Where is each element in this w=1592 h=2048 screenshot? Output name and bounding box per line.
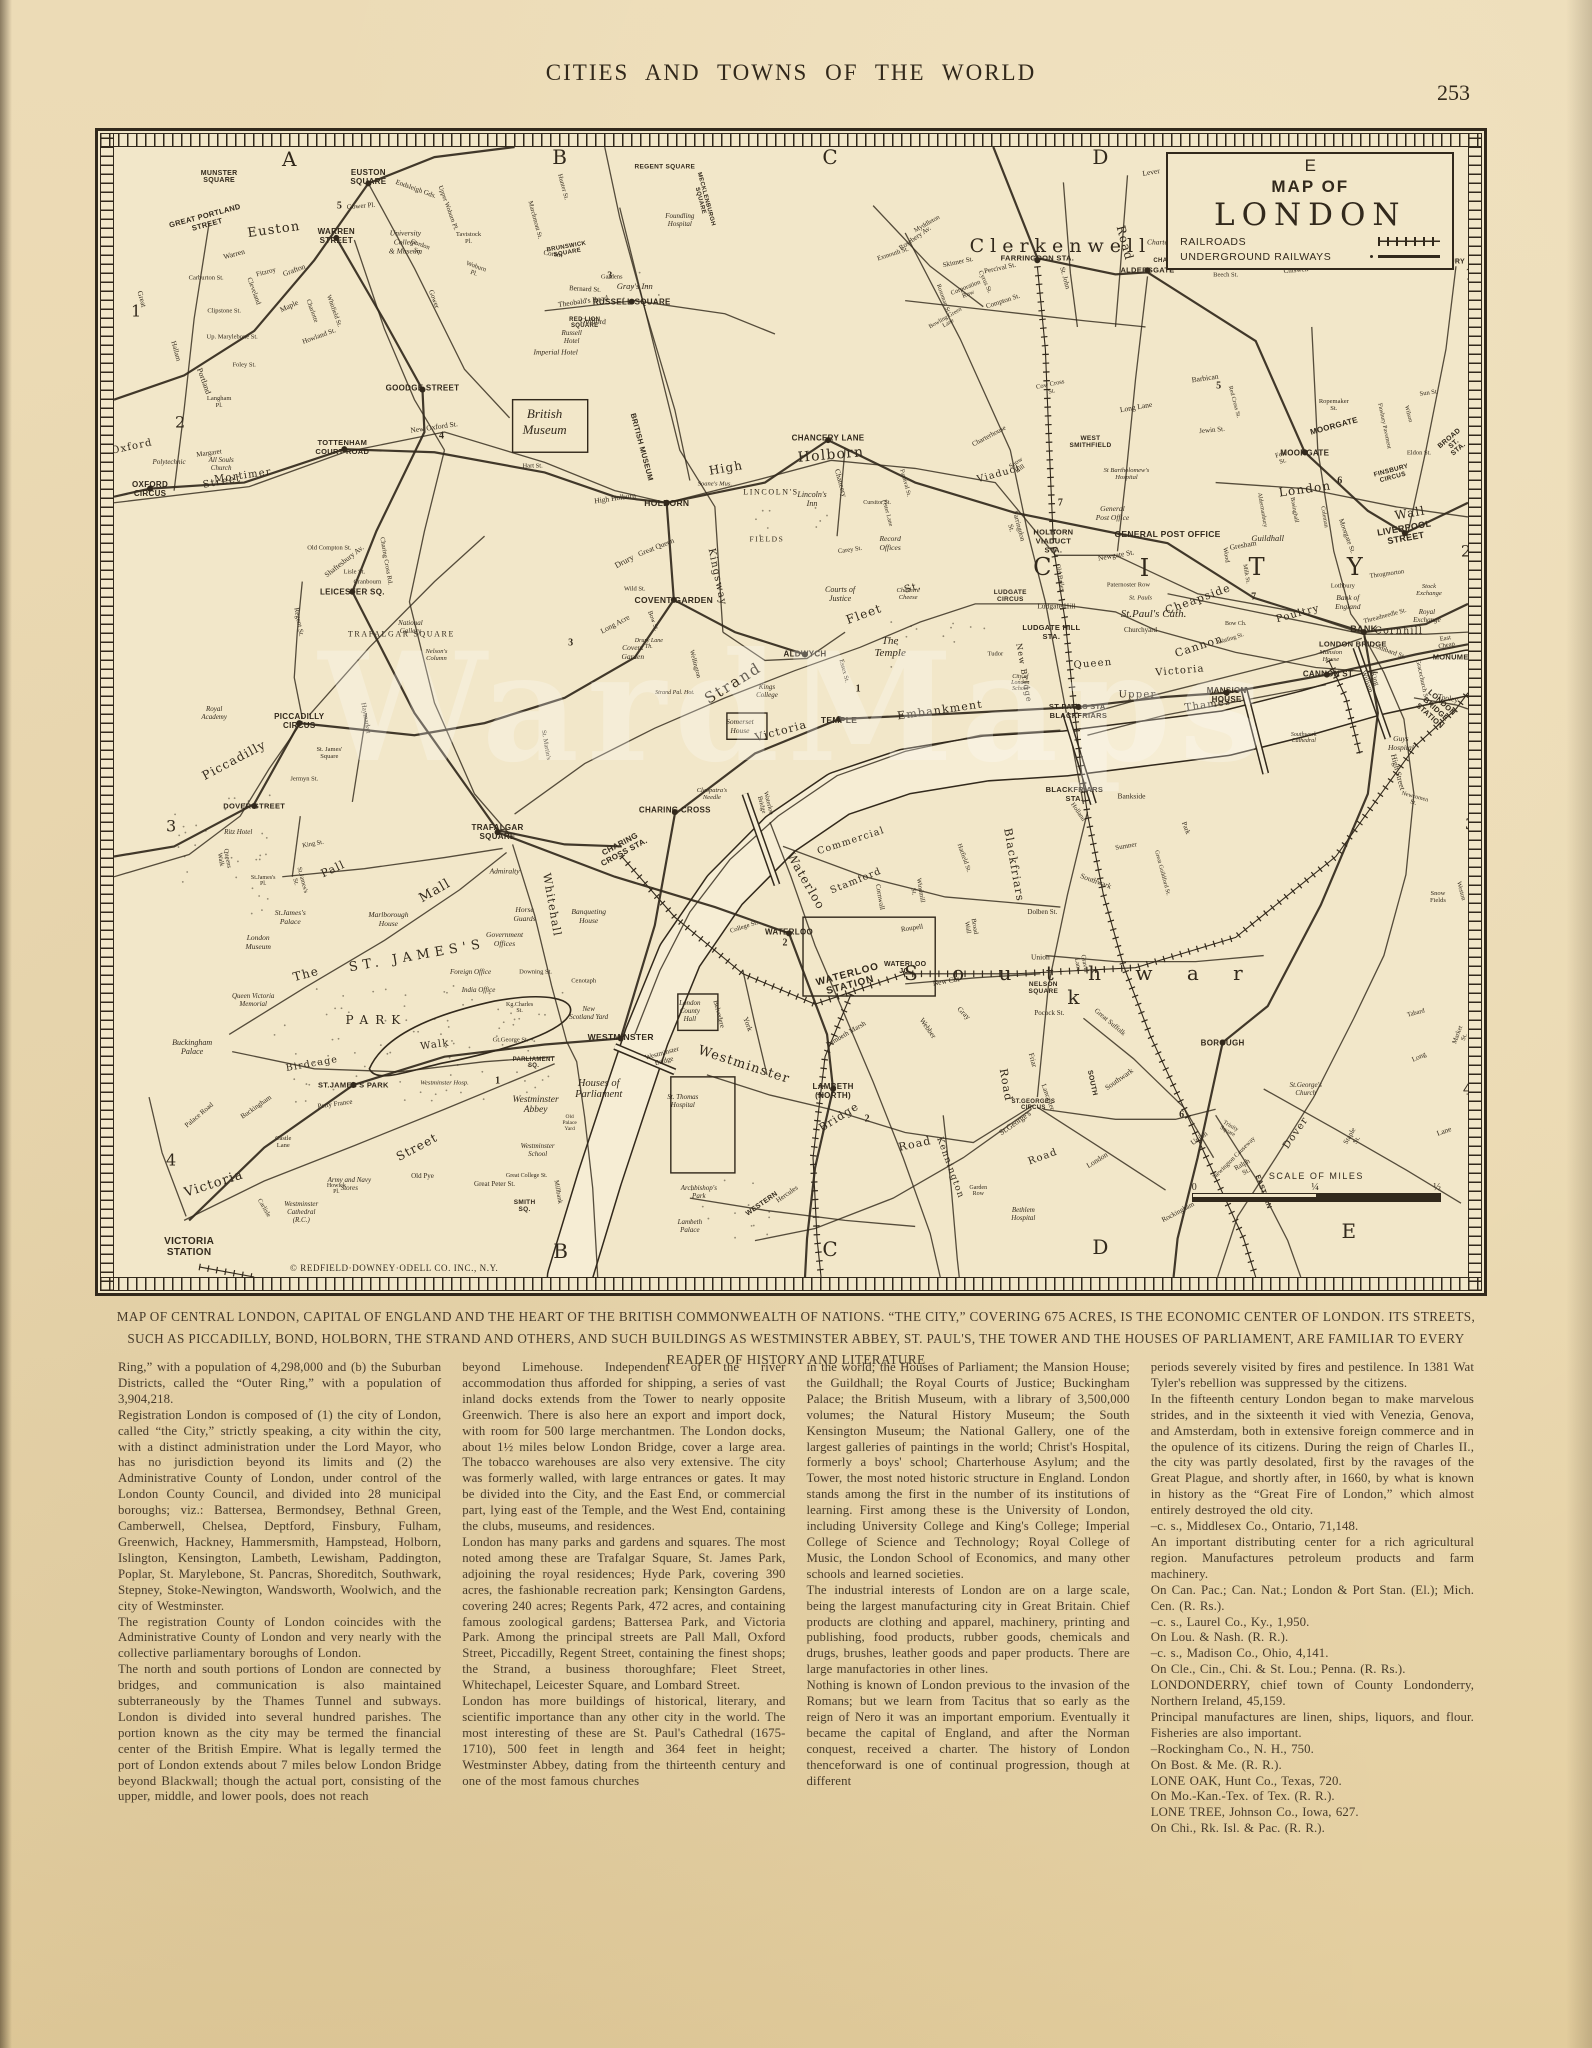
map-label: Exmouth St.: [877, 246, 910, 263]
underground-symbol-icon: [1378, 255, 1440, 258]
map-label: Theobald's Road: [557, 293, 608, 309]
map-label: Staple St.: [1342, 1126, 1365, 1149]
map-label: Houses of Parliament: [575, 1078, 622, 1100]
map-label: BANK: [1350, 624, 1377, 634]
map-label: Barbican: [1191, 372, 1219, 385]
map-label: LINCOLN'S: [743, 487, 798, 496]
map-label: Roupell: [901, 923, 924, 934]
map-label: SMITH SQ.: [514, 1199, 536, 1213]
map-label: TEMPLE: [821, 715, 857, 725]
map-label: Rockingham: [1160, 1200, 1195, 1224]
map-label: TOTTENHAM COURT ROAD: [315, 438, 369, 456]
map-border-ornament-top: [100, 133, 1482, 147]
map-label: Long: [1411, 1050, 1428, 1063]
map-label: Eldon St.: [1407, 450, 1431, 457]
map-canvas: ABCDEBCDE1234123453477685211326GREAT POR…: [114, 147, 1468, 1277]
map-label: Royal Academy: [201, 705, 227, 721]
paragraph: London has more buildings of historical,…: [462, 1694, 785, 1789]
map-label: 5: [1216, 380, 1221, 391]
map-label: Charterhouse: [971, 424, 1008, 449]
map-label: St. Thomas Hospital: [667, 1093, 698, 1109]
map-label: Queen Victoria Memorial: [232, 992, 274, 1008]
paragraph: Ring,” with a population of 4,298,000 an…: [118, 1360, 441, 1408]
map-label: Pall: [319, 857, 347, 879]
map-label: Percival St.: [984, 261, 1017, 276]
map-label: Bow Ch.: [1225, 621, 1246, 627]
map-label: Red Cross St.: [1226, 385, 1240, 418]
map-label: Coram: [543, 249, 563, 260]
map-label: Y: [1347, 553, 1367, 581]
map-label: Hart St.: [522, 463, 542, 470]
map-label: Tavistock Pl.: [456, 231, 481, 245]
map-label: Waterloo: [784, 850, 828, 912]
page-number: 253: [1437, 80, 1470, 106]
map-label: Long Lane: [1119, 399, 1153, 414]
map-label: Park: [1180, 821, 1192, 836]
map-label: Road: [1027, 1146, 1060, 1167]
map-legend: E MAP OF LONDON RAILROADS UNDERGROUND RA…: [1166, 152, 1454, 270]
map-label: Petty France: [317, 1098, 353, 1111]
map-label: Victoria: [183, 1167, 246, 1200]
map-label: Skinner St.: [942, 255, 974, 269]
map-label: ST.JAMES'S PARK: [318, 1080, 389, 1089]
map-label: Palace Road: [183, 1101, 215, 1129]
paragraph: Principal manufactures are linen, ships,…: [1151, 1710, 1474, 1742]
legend-row-underground: UNDERGROUND RAILWAYS: [1168, 251, 1452, 263]
map-label: New Bridge: [1015, 642, 1034, 703]
map-label: Holland: [1070, 801, 1088, 822]
map-label: British Museum: [523, 406, 567, 438]
map-label: Ropemaker St.: [1319, 398, 1349, 412]
map-label: London: [1278, 478, 1332, 499]
map-label: Friar: [1027, 1051, 1039, 1067]
map-label: Commercial: [816, 825, 886, 857]
map-label: Queen: [1074, 657, 1114, 671]
paragraph: Nothing is known of London previous to t…: [807, 1678, 1130, 1789]
map-label: GENERAL POST OFFICE: [1114, 529, 1220, 539]
map-label: CHARING CROSS: [639, 806, 711, 815]
map-label: Broad Wall: [963, 918, 980, 936]
map-label: CHARING CROSS STA.: [595, 828, 649, 868]
map-label: LUDGATE CIRCUS: [994, 589, 1027, 603]
map-label: TRAFALGAR SQUARE: [472, 823, 524, 841]
scale-ticks: 0 ¼ ½: [1192, 1182, 1441, 1193]
map-label: 4: [1463, 1080, 1468, 1099]
map-label: St.James's Palace: [275, 908, 306, 926]
map-label: 1: [495, 1075, 500, 1086]
map-label: Lombard St.: [1371, 642, 1407, 661]
map-label: Carburton St.: [189, 275, 224, 282]
paragraph: Registration London is composed of (1) t…: [118, 1408, 441, 1615]
article-column-4: periods severely visited by fires and pe…: [1151, 1360, 1474, 1837]
map-label: BRITISH MUSEUM: [628, 412, 655, 482]
map-label: Gracechurch St.: [1414, 658, 1430, 700]
map-label: Polytechnic: [153, 458, 186, 466]
book-edge-shadow: [0, 0, 12, 2048]
map-label: Nelson's Column: [425, 648, 447, 662]
map-label: Sun St.: [1419, 388, 1439, 398]
map-label: T: [1249, 553, 1269, 581]
map-label: Strand Pal. Hot.: [655, 690, 694, 696]
map-label: Windmill St.: [908, 878, 926, 905]
map-label: 3: [1465, 815, 1468, 834]
map-label: Throgmorton: [1369, 568, 1404, 580]
map-label: Haymarket: [360, 702, 373, 734]
map-label: Lambeth Palace: [678, 1218, 703, 1234]
map-label: Buckingham Palace: [172, 1038, 212, 1056]
map-label: MOORGATE: [1309, 415, 1359, 436]
map-label: India Office: [462, 986, 496, 994]
map-label: Upper: [1119, 689, 1157, 700]
map-label: St.James's Pl.: [251, 875, 276, 887]
map-label: Paternoster Row: [1107, 581, 1150, 588]
map-label: Warren: [222, 247, 245, 261]
map-label: Weston: [1455, 881, 1467, 901]
map-label: High: [708, 459, 744, 479]
grid-letter-e: E: [1168, 156, 1452, 176]
map-label: Belvedere: [711, 999, 726, 1028]
map-label: St. James' Square: [316, 746, 342, 760]
map-label: Fore St.: [1274, 450, 1289, 467]
map-label: I: [1140, 554, 1153, 582]
page-edge-shadow: [1566, 0, 1592, 2048]
map-label: PARLIAMENT SQ.: [513, 1057, 555, 1069]
map-label: LIVERPOOL STREET: [1372, 518, 1438, 549]
map-label: Moorgate St.: [1337, 518, 1357, 555]
map-label: Wild St.: [624, 585, 645, 592]
map-label: The: [292, 964, 321, 984]
map-label: Aldermanbury: [1256, 492, 1268, 528]
map-border-ornament-right: [1468, 133, 1482, 1291]
railroad-symbol-icon: [1378, 237, 1440, 246]
map-label: Southwark Cathedral: [1291, 732, 1317, 744]
map-label: MONUMENT: [1433, 653, 1468, 662]
map-label: 4: [166, 1150, 176, 1169]
map-label: York: [741, 1016, 754, 1033]
map-label: Great College St.: [506, 1173, 548, 1179]
map-label: Market St.: [1451, 1025, 1468, 1047]
map-label: Record Offices: [879, 534, 900, 552]
map-label: Road: [997, 1067, 1016, 1102]
map-label: London: [1085, 1150, 1110, 1170]
map-label: The Temple: [874, 635, 905, 659]
map-label: King St.: [302, 839, 325, 850]
map-label: St.: [903, 580, 923, 595]
map-label: Rosoman St.: [935, 283, 951, 314]
scale-bar-left-segment: [1193, 1194, 1317, 1201]
map-label: Guildhall: [1251, 533, 1284, 543]
map-label: SOUTH: [1086, 1069, 1098, 1096]
railroads-label: RAILROADS: [1180, 236, 1246, 248]
map-label: Essex St.: [838, 658, 851, 683]
map-label: Threadneedle St.: [1363, 607, 1407, 625]
map-label: Furnival St.: [899, 468, 912, 497]
map-label: Guys Hospital: [1388, 734, 1414, 752]
map-label: Westminster Cathedral (R.C.): [284, 1200, 318, 1224]
map-border-ornament-left: [100, 133, 114, 1291]
map-label: Carey St.: [838, 545, 863, 555]
map-label: 2: [865, 1114, 870, 1125]
scale-bar-right-segment: [1316, 1194, 1440, 1201]
map-label: Admiralty: [490, 866, 520, 875]
map-label: Dolben St.: [1027, 908, 1057, 916]
map-label: Viaduct: [976, 463, 1022, 485]
map-label: East Cheap: [1434, 633, 1458, 651]
map-label: Millbank: [552, 1180, 563, 1205]
map-label: Euston: [247, 219, 302, 241]
map-label: HOLBORN VIADUCT STA.: [1033, 528, 1073, 555]
map-label: Foley St.: [232, 362, 255, 369]
map-label: Union: [1031, 952, 1050, 961]
article-columns: Ring,” with a population of 4,298,000 an…: [118, 1360, 1474, 1837]
map-label: GREAT PORTLAND STREET: [168, 202, 244, 238]
paragraph: The registration County of London coinci…: [118, 1615, 441, 1663]
map-label: Cleopatra's Needle: [697, 787, 727, 801]
map-label: Cranbourn: [353, 578, 381, 585]
map-label: E: [1342, 1219, 1357, 1243]
map-label: 2: [175, 412, 185, 431]
map-label: Somerset House: [726, 717, 754, 735]
map-label: Basinghall: [1289, 497, 1299, 523]
map-label: Hatfield St.: [956, 842, 973, 873]
map-label: Westminster Bridge: [644, 1044, 682, 1068]
map-label: Finsbury Pavement: [1376, 403, 1392, 450]
map-label: B: [552, 147, 567, 169]
map-label: St Bartholomew's Hospital: [1104, 467, 1150, 481]
paragraph: On Bost. & Me. (R. R.).: [1151, 1758, 1474, 1774]
map-label: C: [822, 147, 837, 169]
map-label: Great Queen: [636, 536, 675, 559]
map-label: LAMBETH (NORTH): [812, 1082, 853, 1100]
map-label: Foreign Office: [450, 968, 491, 976]
map-label: Hunter St.: [556, 174, 570, 202]
map-label: Poultry: [1275, 603, 1321, 625]
map-label: PICCADILLY CIRCUS: [274, 712, 324, 730]
paragraph: The north and south portions of London a…: [118, 1662, 441, 1805]
article-column-2: beyond Limehouse. Independent of the riv…: [462, 1360, 785, 1837]
map-label: Royal Exchange: [1406, 608, 1447, 624]
paragraph: On Cle., Cin., Chi. & St. Lou.; Penna. (…: [1151, 1662, 1474, 1678]
map-label: Southwark: [1080, 871, 1114, 891]
map-label: Bethlem Hospital: [1011, 1206, 1035, 1222]
map-label: WARREN STREET: [318, 227, 355, 245]
map-label: Jermyn St.: [290, 775, 318, 782]
paragraph: On Can. Pac.; Can. Nat.; London & Port S…: [1151, 1583, 1474, 1615]
paragraph: On Chi., Rk. Isl. & Pac. (R. R.).: [1151, 1821, 1474, 1837]
map-label: 6: [1337, 475, 1342, 486]
map-label: Thames: [1184, 696, 1232, 713]
map-label: 5: [337, 200, 342, 211]
map-label: High Holburn: [593, 490, 636, 505]
page: CITIES AND TOWNS OF THE WORLD 253 ABCDEB…: [0, 0, 1592, 2048]
map-label: GOODGE STREET: [386, 383, 460, 392]
map-label: Courts of Justice: [825, 585, 855, 603]
map-label: St. John: [1059, 266, 1073, 290]
map-label: Kings College: [756, 683, 778, 699]
paragraph: LONE TREE, Johnson Co., Iowa, 627.: [1151, 1805, 1474, 1821]
map-label: Tudor: [987, 651, 1003, 658]
map-label: St.James's St.: [289, 866, 309, 895]
scale-tick-0: 0: [1192, 1182, 1197, 1193]
map-label: Wellington: [688, 650, 702, 680]
map-label: Fitzroy: [255, 266, 277, 279]
paragraph: in the world; the Houses of Parliament; …: [807, 1360, 1130, 1583]
london-map: ABCDEBCDE1234123453477685211326GREAT POR…: [95, 128, 1487, 1296]
map-label: Hallam: [170, 340, 183, 362]
map-label: Great Guildford St.: [1153, 849, 1171, 895]
map-label: Fleet: [844, 601, 884, 627]
paragraph: –c. s., Middlesex Co., Ontario, 71,148.: [1151, 1519, 1474, 1535]
map-label: Wood: [1221, 547, 1231, 563]
map-label: 7: [1058, 497, 1063, 508]
map-label: COVENT GARDEN: [635, 595, 714, 605]
map-label: Lincoln's Inn: [797, 490, 826, 508]
map-label: Lambeth Marsh: [825, 1020, 868, 1049]
map-label: Gower: [427, 288, 441, 309]
map-label: Ritz Hotel: [224, 828, 252, 836]
paragraph: An important distributing center for a r…: [1151, 1535, 1474, 1583]
map-border-ornament-bottom: [100, 1277, 1482, 1291]
map-label: Great Suffolk: [1093, 1007, 1127, 1038]
map-label: Buckingham: [239, 1094, 273, 1121]
scale-of-miles: SCALE OF MILES 0 ¼ ½: [1192, 1171, 1441, 1202]
map-label: Gardens: [601, 274, 623, 281]
legend-title-map-of: MAP OF: [1168, 177, 1452, 197]
map-label: Lothbury: [1331, 582, 1355, 589]
map-label: St. Pauls: [1129, 594, 1152, 601]
map-label: Ludgate Hill: [1037, 601, 1075, 610]
map-label: Queens Walk: [216, 848, 233, 870]
map-label: Newgate St.: [1098, 548, 1136, 563]
map-label: Clipstone St.: [207, 307, 241, 314]
paragraph: periods severely visited by fires and pe…: [1151, 1360, 1474, 1392]
map-label: Westminster Abbey: [513, 1095, 559, 1115]
map-label: ST PAULS STA. BLACKFRIARS: [1049, 702, 1108, 720]
map-label: Gower Pl.: [347, 200, 376, 210]
map-label: Jewin St.: [1198, 425, 1224, 435]
map-label: Walk: [420, 1037, 451, 1052]
map-label: General Post Office: [1096, 504, 1130, 522]
paragraph: –c. s., Madison Co., Ohio, 4,141.: [1151, 1646, 1474, 1662]
map-label: Whitehall: [540, 872, 564, 938]
map-label: All Souls Church: [209, 456, 234, 472]
map-label: Mansion House: [1319, 649, 1342, 663]
map-label: King William: [1359, 666, 1382, 693]
map-label: Cornwall: [874, 883, 886, 910]
map-label: HOLBORN: [644, 498, 689, 508]
map-label: Old Compton St.: [307, 545, 351, 552]
map-label: LUDGATE HILL STA.: [1022, 623, 1080, 641]
map-label: C: [822, 1237, 837, 1261]
map-label: 3: [166, 817, 176, 836]
map-label: Old Palace Yard: [562, 1114, 576, 1132]
legend-row-railroads: RAILROADS: [1168, 236, 1452, 248]
map-label: Holborn: [797, 444, 865, 466]
map-label: Snow Fields: [1430, 890, 1446, 904]
map-label: WESTERN: [745, 1191, 779, 1218]
map-label: Birdcage: [285, 1054, 339, 1074]
map-label: D: [1092, 1235, 1108, 1259]
map-label: Bridge: [817, 1100, 862, 1135]
map-label: Gt.George St.: [493, 1037, 529, 1044]
map-label: LEICESTER SQ.: [320, 587, 385, 596]
map-label: Drury: [612, 552, 635, 570]
map-label: Drury Lane Th.: [635, 638, 663, 650]
map-label: FIELDS: [749, 535, 784, 544]
map-label: Carlisle: [256, 1198, 272, 1219]
map-label: Kg.Charles St.: [506, 1002, 533, 1014]
map-label: 3: [568, 638, 573, 649]
map-label: Up. Marylebone St.: [207, 334, 258, 341]
map-label: Imperial Hotel: [533, 348, 577, 357]
map-label: St. Martin's: [540, 730, 552, 761]
map-label: Tabard: [1406, 1007, 1425, 1018]
map-label: Stock Exchange: [1409, 583, 1448, 597]
map-label: Bankside: [1118, 791, 1146, 800]
map-label: College St.: [729, 919, 759, 935]
map-label: Russell Hotel: [562, 329, 582, 345]
map-label: Whitfield St.: [325, 294, 343, 328]
map-label: Howick Pl.: [327, 1183, 346, 1195]
map-label: Street: [202, 473, 242, 491]
map-label: 4: [439, 431, 444, 442]
scale-title: SCALE OF MILES: [1192, 1171, 1441, 1181]
map-label: Corporation Row: [950, 278, 984, 303]
map-label: Cenotaph: [571, 977, 596, 984]
map-label: Coleman: [1319, 506, 1329, 528]
map-label: Union: [1188, 1128, 1209, 1146]
map-label: New Oxford St.: [410, 419, 458, 435]
page-header-title: CITIES AND TOWNS OF THE WORLD: [95, 60, 1487, 86]
map-label: A: [282, 147, 296, 171]
map-label: 1: [856, 683, 861, 694]
map-label: Kennington: [934, 1136, 966, 1200]
map-label: BOROUGH: [1201, 1038, 1245, 1047]
map-label: Bow St.: [646, 610, 660, 632]
map-label: Waterloo Bridge: [755, 791, 775, 817]
map-label: St.George's: [998, 1109, 1033, 1137]
map-label: Westminster: [696, 1043, 792, 1087]
map-label: Hercules: [774, 1184, 799, 1205]
map-label: Street: [394, 1130, 440, 1163]
map-label: FINSBURY CIRCUS: [1373, 463, 1411, 486]
map-label: VICTORIA STATION: [164, 1236, 214, 1258]
paragraph: –Rockingham Co., N. H., 750.: [1151, 1742, 1474, 1758]
paragraph: On Lou. & Nash. (R. R.).: [1151, 1630, 1474, 1646]
map-label: Lisle St.: [344, 568, 366, 575]
paragraph: On Mo.-Kan.-Tex. of Tex. (R. R.).: [1151, 1789, 1474, 1805]
map-label: PARK: [346, 1013, 408, 1027]
map-label: Compton St.: [985, 291, 1021, 310]
map-label: Cannon: [1173, 632, 1225, 660]
map-label: Old Pye: [411, 1172, 434, 1180]
paragraph: London has many parks and gardens and sq…: [462, 1535, 785, 1694]
map-label: Cheapside: [1163, 581, 1232, 617]
map-label: C: [1033, 553, 1055, 581]
map-label: Upper Woburn Pl.: [437, 184, 460, 231]
map-label: Cow Cross St.: [1036, 378, 1067, 398]
paragraph: LONDONDERRY, chief town of County London…: [1151, 1678, 1474, 1710]
map-label: Long Acre: [599, 613, 631, 636]
map-label: OXFORD CIRCUS: [132, 480, 168, 498]
map-label: CANNON ST.: [1303, 669, 1355, 678]
map-label: Endsleigh Gds.: [395, 178, 438, 200]
map-label: DOVER STREET: [223, 801, 285, 810]
map-copyright: © REDFIELD·DOWNEY·ODELL CO. INC., N.Y.: [290, 1263, 498, 1273]
map-label: Southwark: [1104, 1066, 1136, 1092]
map-label: Regent St.: [293, 607, 306, 637]
map-label: Piccadilly: [200, 737, 269, 782]
